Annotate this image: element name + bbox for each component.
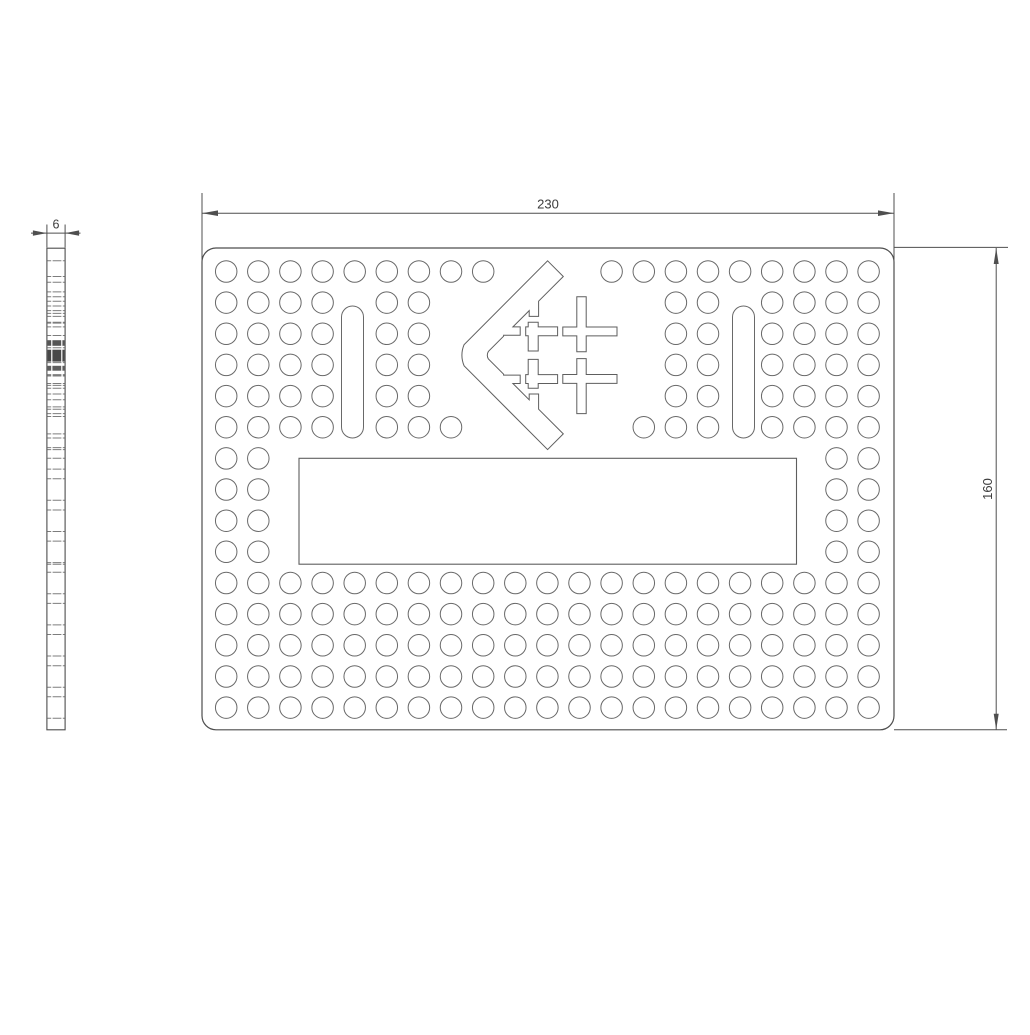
svg-text:160: 160 <box>980 478 995 500</box>
svg-text:6: 6 <box>53 218 60 232</box>
svg-text:230: 230 <box>537 197 559 212</box>
